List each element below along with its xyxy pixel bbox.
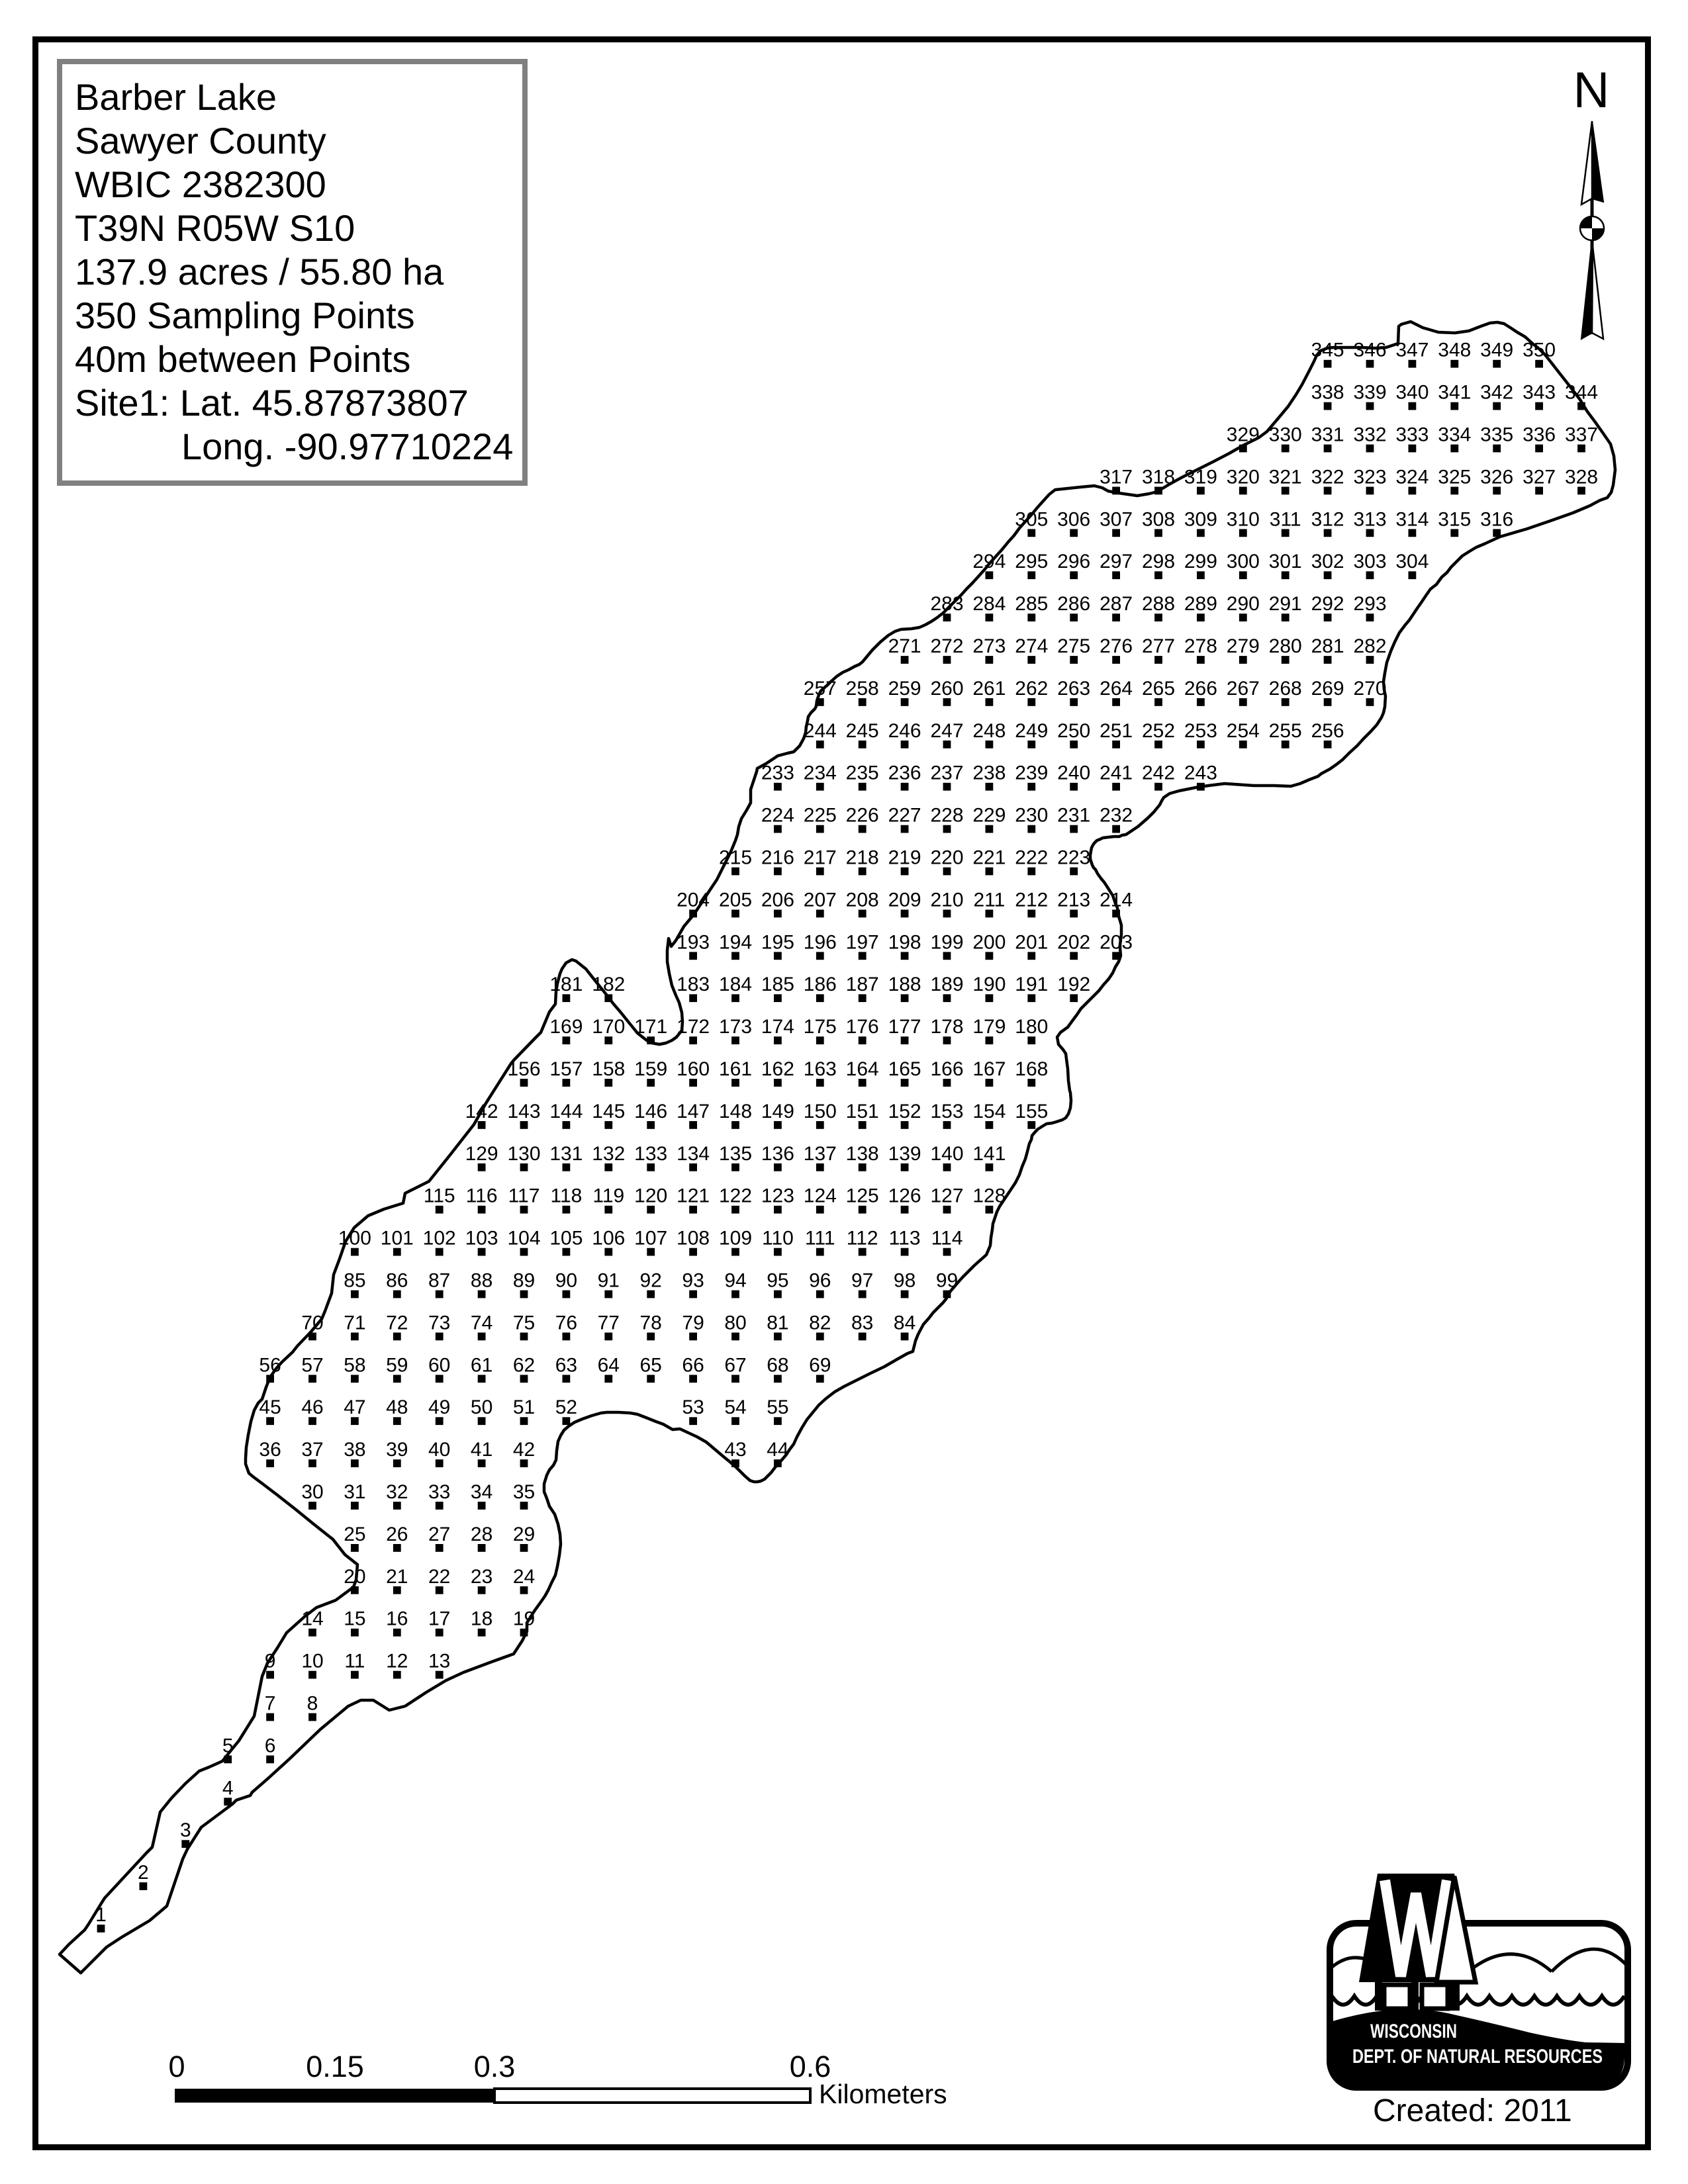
- svg-text:341: 341: [1438, 382, 1471, 404]
- svg-text:301: 301: [1269, 551, 1302, 572]
- svg-text:14: 14: [301, 1608, 323, 1630]
- svg-text:65: 65: [640, 1354, 662, 1376]
- svg-text:195: 195: [761, 931, 794, 953]
- svg-text:120: 120: [634, 1185, 667, 1207]
- svg-text:278: 278: [1184, 635, 1217, 657]
- svg-text:129: 129: [465, 1143, 498, 1165]
- svg-text:273: 273: [972, 635, 1006, 657]
- svg-text:29: 29: [513, 1524, 535, 1545]
- svg-text:42: 42: [513, 1439, 535, 1461]
- svg-text:74: 74: [471, 1312, 492, 1334]
- svg-text:133: 133: [634, 1143, 667, 1165]
- svg-text:344: 344: [1565, 382, 1598, 404]
- svg-text:56: 56: [259, 1354, 281, 1376]
- svg-text:48: 48: [386, 1396, 408, 1418]
- svg-text:188: 188: [888, 974, 921, 995]
- svg-text:254: 254: [1227, 720, 1260, 742]
- svg-text:236: 236: [888, 762, 921, 784]
- svg-text:338: 338: [1311, 382, 1344, 404]
- svg-text:207: 207: [804, 889, 837, 911]
- svg-text:261: 261: [972, 678, 1006, 700]
- svg-text:154: 154: [972, 1101, 1006, 1122]
- svg-text:222: 222: [1015, 847, 1048, 869]
- svg-text:332: 332: [1353, 424, 1386, 446]
- svg-text:35: 35: [513, 1481, 535, 1503]
- svg-text:138: 138: [846, 1143, 879, 1165]
- svg-text:274: 274: [1015, 635, 1048, 657]
- svg-text:324: 324: [1395, 466, 1429, 488]
- svg-text:132: 132: [592, 1143, 625, 1165]
- svg-text:104: 104: [507, 1228, 540, 1250]
- svg-text:239: 239: [1015, 762, 1048, 784]
- svg-text:252: 252: [1142, 720, 1175, 742]
- svg-text:53: 53: [682, 1396, 704, 1418]
- svg-text:206: 206: [761, 889, 794, 911]
- svg-text:30: 30: [301, 1481, 323, 1503]
- svg-text:191: 191: [1015, 974, 1048, 995]
- svg-text:200: 200: [972, 931, 1006, 953]
- svg-text:293: 293: [1353, 593, 1386, 615]
- svg-text:64: 64: [598, 1354, 620, 1376]
- svg-text:272: 272: [930, 635, 963, 657]
- svg-text:218: 218: [846, 847, 879, 869]
- svg-text:343: 343: [1523, 382, 1556, 404]
- svg-text:82: 82: [809, 1312, 831, 1334]
- svg-text:234: 234: [804, 762, 837, 784]
- svg-text:208: 208: [846, 889, 879, 911]
- svg-text:0: 0: [168, 2050, 185, 2083]
- svg-text:209: 209: [888, 889, 921, 911]
- svg-text:88: 88: [471, 1270, 492, 1292]
- svg-text:255: 255: [1269, 720, 1302, 742]
- svg-text:143: 143: [507, 1101, 540, 1122]
- svg-text:71: 71: [344, 1312, 365, 1334]
- svg-text:189: 189: [930, 974, 963, 995]
- svg-text:318: 318: [1142, 466, 1175, 488]
- svg-text:23: 23: [471, 1566, 492, 1588]
- svg-text:WBIC 2382300: WBIC 2382300: [75, 163, 326, 205]
- svg-text:8: 8: [307, 1693, 318, 1715]
- svg-text:37: 37: [301, 1439, 323, 1461]
- svg-text:240: 240: [1057, 762, 1090, 784]
- svg-text:169: 169: [549, 1016, 583, 1038]
- svg-text:215: 215: [719, 847, 752, 869]
- svg-text:168: 168: [1015, 1058, 1048, 1080]
- svg-text:83: 83: [851, 1312, 873, 1334]
- svg-text:159: 159: [634, 1058, 667, 1080]
- svg-text:26: 26: [386, 1524, 408, 1545]
- svg-text:196: 196: [804, 931, 837, 953]
- svg-text:283: 283: [930, 593, 963, 615]
- svg-text:155: 155: [1015, 1101, 1048, 1122]
- svg-text:289: 289: [1184, 593, 1217, 615]
- svg-text:241: 241: [1100, 762, 1133, 784]
- svg-text:116: 116: [466, 1185, 498, 1207]
- svg-text:216: 216: [761, 847, 794, 869]
- svg-text:4: 4: [222, 1777, 234, 1799]
- svg-text:331: 331: [1311, 424, 1344, 446]
- svg-text:11: 11: [344, 1651, 365, 1672]
- svg-text:244: 244: [804, 720, 837, 742]
- svg-text:281: 281: [1311, 635, 1344, 657]
- svg-text:25: 25: [344, 1524, 365, 1545]
- svg-text:84: 84: [894, 1312, 915, 1334]
- svg-text:92: 92: [640, 1270, 662, 1292]
- svg-text:115: 115: [424, 1185, 455, 1207]
- svg-text:67: 67: [724, 1354, 746, 1376]
- svg-text:174: 174: [761, 1016, 794, 1038]
- svg-text:112: 112: [847, 1228, 878, 1250]
- svg-text:75: 75: [513, 1312, 535, 1334]
- svg-text:2: 2: [138, 1862, 149, 1884]
- svg-text:219: 219: [888, 847, 921, 869]
- svg-text:256: 256: [1311, 720, 1344, 742]
- svg-text:89: 89: [513, 1270, 535, 1292]
- svg-text:286: 286: [1057, 593, 1090, 615]
- svg-text:345: 345: [1311, 340, 1344, 361]
- svg-text:257: 257: [804, 678, 837, 700]
- svg-text:264: 264: [1100, 678, 1133, 700]
- svg-text:309: 309: [1184, 508, 1217, 530]
- svg-text:114: 114: [931, 1228, 963, 1250]
- svg-text:77: 77: [598, 1312, 620, 1334]
- svg-text:3: 3: [180, 1819, 191, 1841]
- svg-text:339: 339: [1353, 382, 1386, 404]
- svg-text:183: 183: [677, 974, 710, 995]
- svg-text:110: 110: [762, 1228, 794, 1250]
- svg-text:232: 232: [1100, 805, 1133, 827]
- svg-text:175: 175: [804, 1016, 837, 1038]
- svg-text:204: 204: [677, 889, 710, 911]
- svg-text:248: 248: [972, 720, 1006, 742]
- svg-text:305: 305: [1015, 508, 1048, 530]
- svg-text:347: 347: [1395, 340, 1429, 361]
- svg-text:217: 217: [804, 847, 837, 869]
- svg-text:221: 221: [972, 847, 1006, 869]
- svg-text:291: 291: [1269, 593, 1302, 615]
- svg-text:Site1: Lat. 45.87873807: Site1: Lat. 45.87873807: [75, 382, 469, 424]
- svg-text:141: 141: [972, 1143, 1006, 1165]
- svg-text:330: 330: [1269, 424, 1302, 446]
- svg-text:238: 238: [972, 762, 1006, 784]
- svg-text:127: 127: [930, 1185, 963, 1207]
- svg-text:202: 202: [1057, 931, 1090, 953]
- svg-text:61: 61: [471, 1354, 492, 1376]
- svg-text:45: 45: [259, 1396, 281, 1418]
- svg-text:93: 93: [682, 1270, 704, 1292]
- svg-text:311: 311: [1270, 508, 1301, 530]
- svg-text:350: 350: [1523, 340, 1556, 361]
- svg-text:171: 171: [634, 1016, 667, 1038]
- svg-text:253: 253: [1184, 720, 1217, 742]
- svg-text:245: 245: [846, 720, 879, 742]
- svg-text:16: 16: [386, 1608, 408, 1630]
- svg-text:134: 134: [677, 1143, 710, 1165]
- svg-text:176: 176: [846, 1016, 879, 1038]
- svg-text:27: 27: [428, 1524, 450, 1545]
- svg-text:277: 277: [1142, 635, 1175, 657]
- svg-text:285: 285: [1015, 593, 1048, 615]
- svg-text:31: 31: [344, 1481, 365, 1503]
- svg-text:327: 327: [1523, 466, 1556, 488]
- svg-text:340: 340: [1395, 382, 1429, 404]
- svg-text:DEPT. OF NATURAL RESOURCES: DEPT. OF NATURAL RESOURCES: [1352, 2046, 1603, 2068]
- svg-text:113: 113: [889, 1228, 921, 1250]
- svg-text:198: 198: [888, 931, 921, 953]
- svg-text:72: 72: [386, 1312, 408, 1334]
- svg-text:144: 144: [549, 1101, 583, 1122]
- svg-text:337: 337: [1565, 424, 1598, 446]
- svg-text:233: 233: [761, 762, 794, 784]
- svg-text:263: 263: [1057, 678, 1090, 700]
- svg-text:246: 246: [888, 720, 921, 742]
- svg-text:214: 214: [1100, 889, 1133, 911]
- svg-text:210: 210: [930, 889, 963, 911]
- svg-text:90: 90: [555, 1270, 577, 1292]
- svg-text:73: 73: [428, 1312, 450, 1334]
- svg-text:203: 203: [1100, 931, 1133, 953]
- svg-text:349: 349: [1480, 340, 1513, 361]
- svg-text:181: 181: [549, 974, 583, 995]
- svg-text:268: 268: [1269, 678, 1302, 700]
- svg-text:156: 156: [507, 1058, 540, 1080]
- svg-text:314: 314: [1395, 508, 1429, 530]
- svg-text:297: 297: [1100, 551, 1133, 572]
- svg-text:182: 182: [592, 974, 625, 995]
- svg-text:6: 6: [265, 1735, 276, 1756]
- svg-text:98: 98: [894, 1270, 915, 1292]
- svg-text:105: 105: [549, 1228, 583, 1250]
- svg-text:317: 317: [1100, 466, 1133, 488]
- svg-text:295: 295: [1015, 551, 1048, 572]
- svg-text:197: 197: [846, 931, 879, 953]
- svg-text:220: 220: [930, 847, 963, 869]
- svg-text:51: 51: [513, 1396, 535, 1418]
- svg-text:336: 336: [1523, 424, 1556, 446]
- svg-text:91: 91: [598, 1270, 620, 1292]
- svg-text:166: 166: [930, 1058, 963, 1080]
- svg-text:199: 199: [930, 931, 963, 953]
- svg-text:325: 325: [1438, 466, 1471, 488]
- svg-text:34: 34: [471, 1481, 492, 1503]
- svg-text:335: 335: [1480, 424, 1513, 446]
- svg-text:190: 190: [972, 974, 1006, 995]
- svg-text:150: 150: [804, 1101, 837, 1122]
- svg-text:328: 328: [1565, 466, 1598, 488]
- svg-text:160: 160: [677, 1058, 710, 1080]
- svg-text:49: 49: [428, 1396, 450, 1418]
- svg-text:103: 103: [465, 1228, 498, 1250]
- svg-text:46: 46: [301, 1396, 323, 1418]
- svg-text:193: 193: [677, 931, 710, 953]
- svg-text:179: 179: [972, 1016, 1006, 1038]
- svg-text:227: 227: [888, 805, 921, 827]
- svg-text:237: 237: [930, 762, 963, 784]
- svg-text:100: 100: [338, 1228, 371, 1250]
- svg-text:60: 60: [428, 1354, 450, 1376]
- svg-text:284: 284: [972, 593, 1006, 615]
- svg-text:20: 20: [344, 1566, 365, 1588]
- svg-text:279: 279: [1227, 635, 1260, 657]
- svg-text:211: 211: [973, 889, 1005, 911]
- svg-text:0.3: 0.3: [474, 2050, 516, 2083]
- svg-text:12: 12: [386, 1651, 408, 1672]
- svg-text:Long. -90.97710224: Long. -90.97710224: [181, 426, 513, 467]
- svg-text:95: 95: [767, 1270, 788, 1292]
- svg-text:319: 319: [1184, 466, 1217, 488]
- svg-text:194: 194: [719, 931, 752, 953]
- svg-text:T39N R05W S10: T39N R05W S10: [75, 207, 355, 249]
- svg-text:149: 149: [761, 1101, 794, 1122]
- svg-text:315: 315: [1438, 508, 1471, 530]
- svg-text:66: 66: [682, 1354, 704, 1376]
- svg-text:334: 334: [1438, 424, 1471, 446]
- svg-text:269: 269: [1311, 678, 1344, 700]
- svg-text:107: 107: [634, 1228, 667, 1250]
- svg-text:205: 205: [719, 889, 752, 911]
- svg-text:62: 62: [513, 1354, 535, 1376]
- svg-text:187: 187: [846, 974, 879, 995]
- svg-text:Barber Lake: Barber Lake: [75, 76, 277, 118]
- svg-text:249: 249: [1015, 720, 1048, 742]
- svg-text:265: 265: [1142, 678, 1175, 700]
- svg-text:9: 9: [265, 1651, 276, 1672]
- svg-text:180: 180: [1015, 1016, 1048, 1038]
- svg-text:266: 266: [1184, 678, 1217, 700]
- svg-text:128: 128: [972, 1185, 1006, 1207]
- svg-text:99: 99: [936, 1270, 958, 1292]
- svg-text:267: 267: [1227, 678, 1260, 700]
- svg-text:303: 303: [1353, 551, 1386, 572]
- svg-text:185: 185: [761, 974, 794, 995]
- svg-text:139: 139: [888, 1143, 921, 1165]
- svg-text:148: 148: [719, 1101, 752, 1122]
- svg-text:298: 298: [1142, 551, 1175, 572]
- svg-text:136: 136: [761, 1143, 794, 1165]
- svg-text:242: 242: [1142, 762, 1175, 784]
- svg-text:55: 55: [767, 1396, 788, 1418]
- svg-text:321: 321: [1269, 466, 1302, 488]
- svg-text:41: 41: [471, 1439, 492, 1461]
- svg-text:316: 316: [1480, 508, 1513, 530]
- svg-text:36: 36: [259, 1439, 281, 1461]
- svg-text:260: 260: [930, 678, 963, 700]
- svg-text:59: 59: [386, 1354, 408, 1376]
- svg-text:326: 326: [1480, 466, 1513, 488]
- svg-text:21: 21: [386, 1566, 408, 1588]
- svg-text:333: 333: [1395, 424, 1429, 446]
- svg-text:118: 118: [550, 1185, 582, 1207]
- svg-text:299: 299: [1184, 551, 1217, 572]
- svg-text:225: 225: [804, 805, 837, 827]
- svg-text:52: 52: [555, 1396, 577, 1418]
- svg-text:44: 44: [767, 1439, 788, 1461]
- svg-text:282: 282: [1353, 635, 1386, 657]
- svg-text:231: 231: [1057, 805, 1090, 827]
- svg-text:322: 322: [1311, 466, 1344, 488]
- svg-text:270: 270: [1353, 678, 1386, 700]
- svg-text:162: 162: [761, 1058, 794, 1080]
- svg-text:152: 152: [888, 1101, 921, 1122]
- svg-text:40m between Points: 40m between Points: [75, 338, 410, 380]
- svg-text:346: 346: [1353, 340, 1386, 361]
- svg-text:79: 79: [682, 1312, 704, 1334]
- svg-text:230: 230: [1015, 805, 1048, 827]
- svg-text:177: 177: [888, 1016, 921, 1038]
- svg-text:106: 106: [592, 1228, 625, 1250]
- svg-text:350 Sampling Points: 350 Sampling Points: [75, 295, 415, 336]
- svg-text:212: 212: [1015, 889, 1048, 911]
- svg-text:164: 164: [846, 1058, 879, 1080]
- svg-text:WISCONSIN: WISCONSIN: [1370, 2021, 1457, 2042]
- svg-text:342: 342: [1480, 382, 1513, 404]
- svg-text:15: 15: [344, 1608, 365, 1630]
- svg-text:109: 109: [719, 1228, 752, 1250]
- svg-text:262: 262: [1015, 678, 1048, 700]
- svg-text:108: 108: [677, 1228, 710, 1250]
- svg-text:18: 18: [471, 1608, 492, 1630]
- svg-text:290: 290: [1227, 593, 1260, 615]
- svg-text:235: 235: [846, 762, 879, 784]
- svg-text:313: 313: [1353, 508, 1386, 530]
- svg-text:140: 140: [930, 1143, 963, 1165]
- svg-text:96: 96: [809, 1270, 831, 1292]
- svg-text:151: 151: [846, 1101, 879, 1122]
- svg-text:167: 167: [972, 1058, 1006, 1080]
- svg-text:63: 63: [555, 1354, 577, 1376]
- svg-text:28: 28: [471, 1524, 492, 1545]
- svg-text:43: 43: [724, 1439, 746, 1461]
- svg-text:304: 304: [1395, 551, 1429, 572]
- svg-text:276: 276: [1100, 635, 1133, 657]
- svg-text:146: 146: [634, 1101, 667, 1122]
- svg-text:125: 125: [846, 1185, 879, 1207]
- svg-text:86: 86: [386, 1270, 408, 1292]
- svg-text:N: N: [1573, 62, 1610, 118]
- svg-text:320: 320: [1227, 466, 1260, 488]
- svg-text:224: 224: [761, 805, 794, 827]
- svg-text:153: 153: [930, 1101, 963, 1122]
- svg-text:288: 288: [1142, 593, 1175, 615]
- svg-text:87: 87: [428, 1270, 450, 1292]
- svg-text:17: 17: [428, 1608, 450, 1630]
- svg-text:201: 201: [1015, 931, 1048, 953]
- svg-text:69: 69: [809, 1354, 831, 1376]
- svg-text:101: 101: [381, 1228, 414, 1250]
- svg-text:250: 250: [1057, 720, 1090, 742]
- svg-text:122: 122: [719, 1185, 752, 1207]
- svg-text:247: 247: [930, 720, 963, 742]
- svg-text:111: 111: [805, 1228, 835, 1250]
- svg-text:94: 94: [724, 1270, 746, 1292]
- svg-text:40: 40: [428, 1439, 450, 1461]
- svg-text:300: 300: [1227, 551, 1260, 572]
- svg-text:39: 39: [386, 1439, 408, 1461]
- svg-text:145: 145: [592, 1101, 625, 1122]
- svg-text:102: 102: [423, 1228, 456, 1250]
- svg-text:76: 76: [555, 1312, 577, 1334]
- svg-text:19: 19: [513, 1608, 535, 1630]
- svg-text:228: 228: [930, 805, 963, 827]
- svg-text:213: 213: [1057, 889, 1090, 911]
- svg-text:57: 57: [301, 1354, 323, 1376]
- svg-text:54: 54: [724, 1396, 746, 1418]
- svg-text:117: 117: [508, 1185, 540, 1207]
- svg-text:7: 7: [265, 1693, 276, 1715]
- svg-text:178: 178: [930, 1016, 963, 1038]
- svg-text:137.9 acres / 55.80 ha: 137.9 acres / 55.80 ha: [75, 251, 444, 293]
- svg-text:131: 131: [549, 1143, 583, 1165]
